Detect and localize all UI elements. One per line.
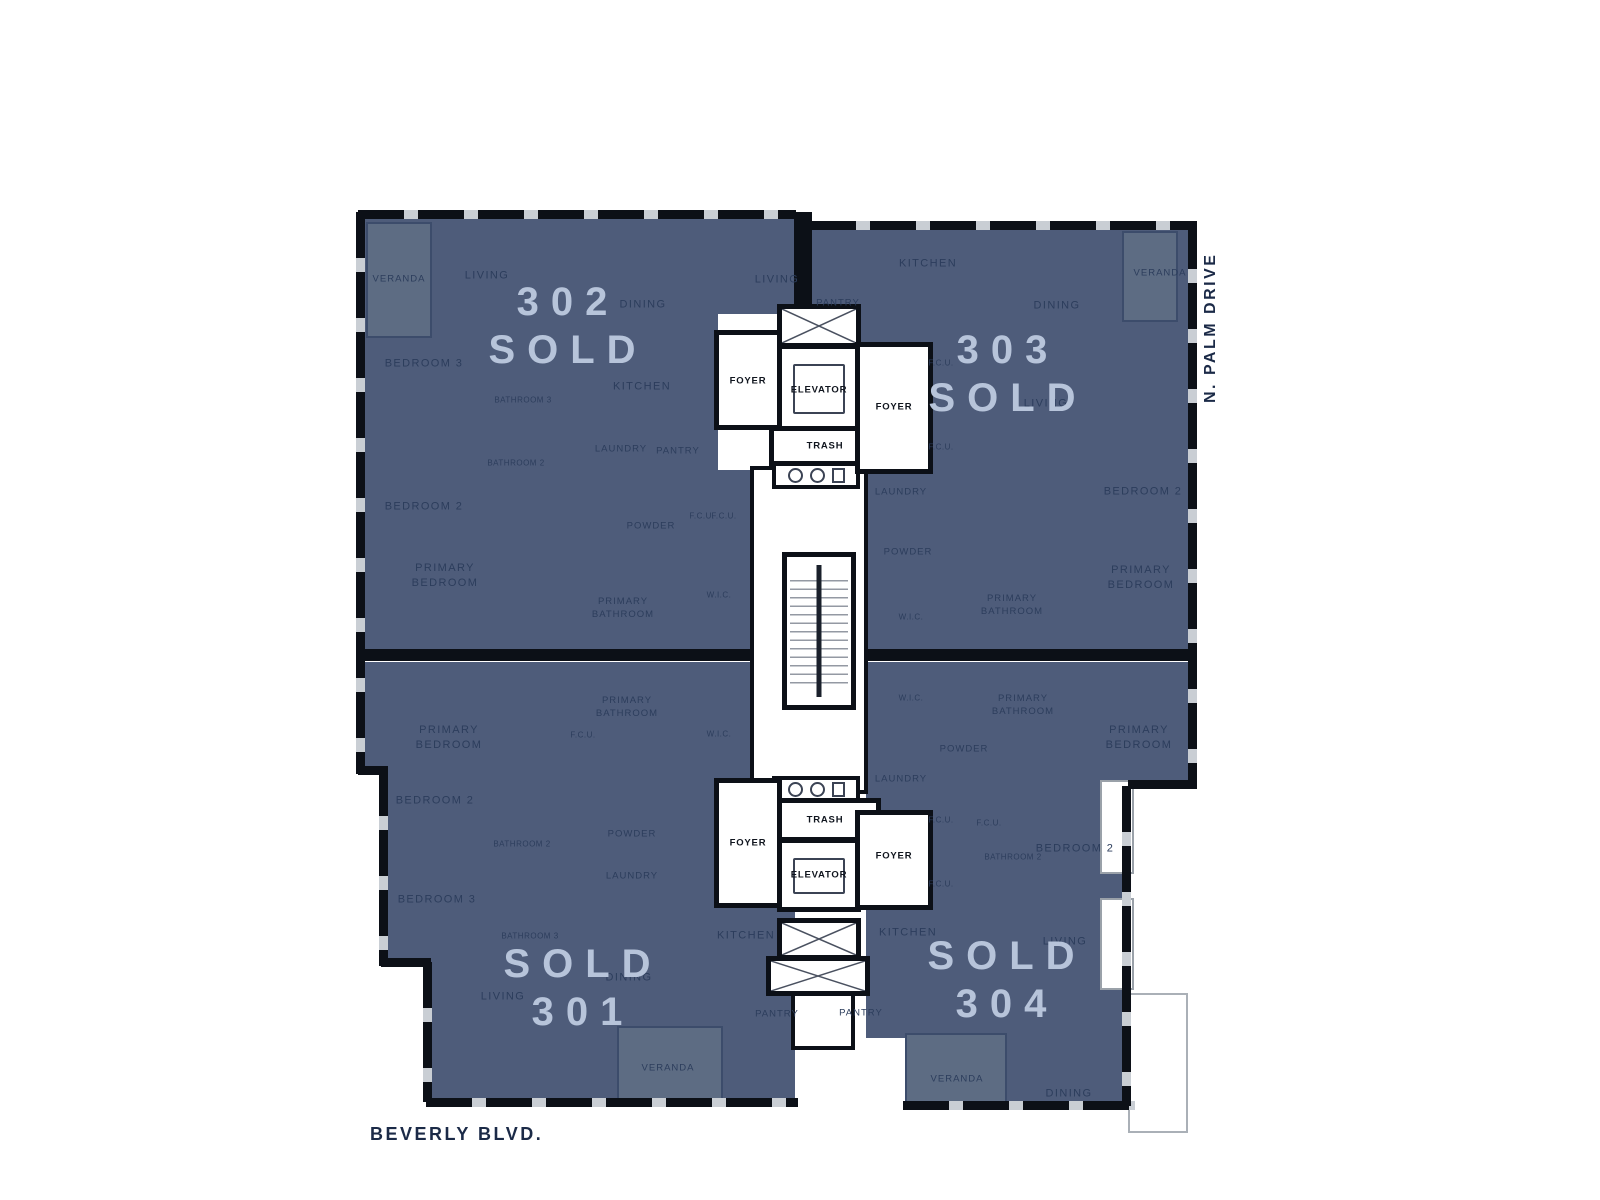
room-label-veranda: VERANDA [931,1074,984,1087]
unit-number: 302 [476,278,647,326]
room-label-bathroom2: BATHROOM 2 [487,459,544,470]
room-label-laundry: LAUNDRY [875,487,927,500]
room-label-primary-bedroom: PRIMARY BEDROOM [399,561,491,591]
elevator-shaft-bottom-2 [766,956,870,996]
room-label-veranda: VERANDA [373,274,426,287]
room-label-veranda: VERANDA [642,1063,695,1076]
room-label-bathroom2: BATHROOM 2 [493,840,550,851]
wall-divider-left [360,649,752,661]
trash-label: TRASH [807,441,844,452]
room-label-bedroom3: BEDROOM 3 [385,357,464,372]
room-label-laundry: LAUNDRY [606,871,658,884]
room-label-pantry: PANTRY [755,1009,799,1022]
fixtures-top [772,462,860,489]
trash-label: TRASH [807,815,844,826]
wall-right-lower [1122,786,1131,1106]
core-vestibule-bottom [791,992,855,1050]
room-label-primary-bedroom: PRIMARY BEDROOM [1093,723,1185,753]
room-label-bathroom2: BATHROOM 2 [984,853,1041,864]
elevator-label: ELEVATOR [791,870,848,881]
room-label-primary-bathroom: PRIMARY BATHROOM [577,596,669,622]
unit-302-sold-label: 302 SOLD [476,278,647,374]
elevator-shaft-top [777,304,861,348]
room-label-bedroom2: BEDROOM 2 [385,500,464,515]
room-label-pantry: PANTRY [839,1008,883,1021]
unit-301-sold-label: SOLD 301 [491,940,662,1036]
wall-step-right [1128,780,1197,789]
room-label-bedroom2: BEDROOM 2 [1104,485,1183,500]
wall-left-lower [423,962,432,1102]
wall-top-center [794,212,812,316]
room-label-living: LIVING [755,273,799,288]
sink-icon [810,782,825,797]
fixture-icon [832,468,845,483]
room-label-bathroom3: BATHROOM 3 [494,396,551,407]
room-label-dining: DINING [1046,1087,1093,1102]
room-label-fcu: F.C.U. [928,443,953,454]
terrace-outline [1128,993,1188,1133]
foyer-label: FOYER [730,838,767,849]
wall-top-302 [358,210,796,219]
wall-divider-right [864,649,1195,661]
unit-status: SOLD [491,940,662,988]
unit-303-sold-label: 303 SOLD [916,326,1087,422]
wall-left-mid [379,770,388,966]
foyer-label: FOYER [876,851,913,862]
wall-left-upper [356,212,365,774]
room-label-powder: POWDER [608,829,657,842]
room-label-kitchen: KITCHEN [613,380,671,395]
unit-number: 304 [915,980,1086,1028]
room-label-primary-bathroom: PRIMARY BATHROOM [966,593,1058,619]
room-label-pantry: PANTRY [816,298,860,311]
unit-304-sold-label: SOLD 304 [915,932,1086,1028]
wall-bottom-301 [426,1098,798,1107]
unit-status: SOLD [916,374,1087,422]
sink-icon [810,468,825,483]
room-label-laundry: LAUNDRY [595,444,647,457]
street-label-beverly-blvd: BEVERLY BLVD. [370,1124,543,1145]
room-label-bedroom2: BEDROOM 2 [396,794,475,809]
room-label-fcu: F.C.U. [928,880,953,891]
elevator-label: ELEVATOR [791,385,848,396]
elevator-shaft-bottom-1 [777,918,861,960]
foyer-label: FOYER [730,376,767,387]
wall-right-upper [1188,223,1197,788]
unit-number: 303 [916,326,1087,374]
room-label-wic: W.I.C. [707,730,732,741]
room-label-powder: POWDER [884,547,933,560]
wall-top-303 [810,221,1197,230]
room-label-primary-bedroom: PRIMARY BEDROOM [1095,563,1187,593]
room-label-fcu: F.C.U. [976,819,1001,830]
room-label-fcu: F.C.U. [570,731,595,742]
room-label-wic: W.I.C. [707,591,732,602]
room-label-wic: W.I.C. [899,694,924,705]
street-label-n-palm-drive: N. PALM DRIVE [1202,218,1220,403]
room-label-kitchen: KITCHEN [899,257,957,272]
room-label-dining: DINING [1034,299,1081,314]
room-label-wic: W.I.C. [899,613,924,624]
room-label-fcu: F.C.U. [711,512,736,523]
room-label-bedroom3: BEDROOM 3 [398,893,477,908]
foyer-label: FOYER [876,402,913,413]
sink-icon [788,782,803,797]
stair-rail-icon [817,565,822,697]
unit-status: SOLD [915,932,1086,980]
room-label-laundry: LAUNDRY [875,774,927,787]
room-label-primary-bathroom: PRIMARY BATHROOM [581,695,673,721]
room-label-powder: POWDER [940,744,989,757]
room-label-veranda: VERANDA [1134,268,1187,281]
room-label-primary-bedroom: PRIMARY BEDROOM [403,723,495,753]
fixture-icon [832,782,845,797]
room-label-fcu: F.C.U. [928,816,953,827]
wall-bottom-304 [903,1101,1135,1110]
unit-number: 301 [491,988,662,1036]
room-label-primary-bathroom: PRIMARY BATHROOM [977,693,1069,719]
unit-status: SOLD [476,326,647,374]
room-label-kitchen: KITCHEN [717,929,775,944]
room-label-powder: POWDER [627,521,676,534]
veranda-304 [905,1033,1007,1107]
stairwell [782,552,856,710]
floor-plan-canvas: FOYER ELEVATOR FOYER TRASH TRASH FOYER F… [0,0,1600,1200]
room-label-pantry: PANTRY [656,446,700,459]
sink-icon [788,468,803,483]
room-label-bedroom2: BEDROOM 2 [1036,842,1115,857]
